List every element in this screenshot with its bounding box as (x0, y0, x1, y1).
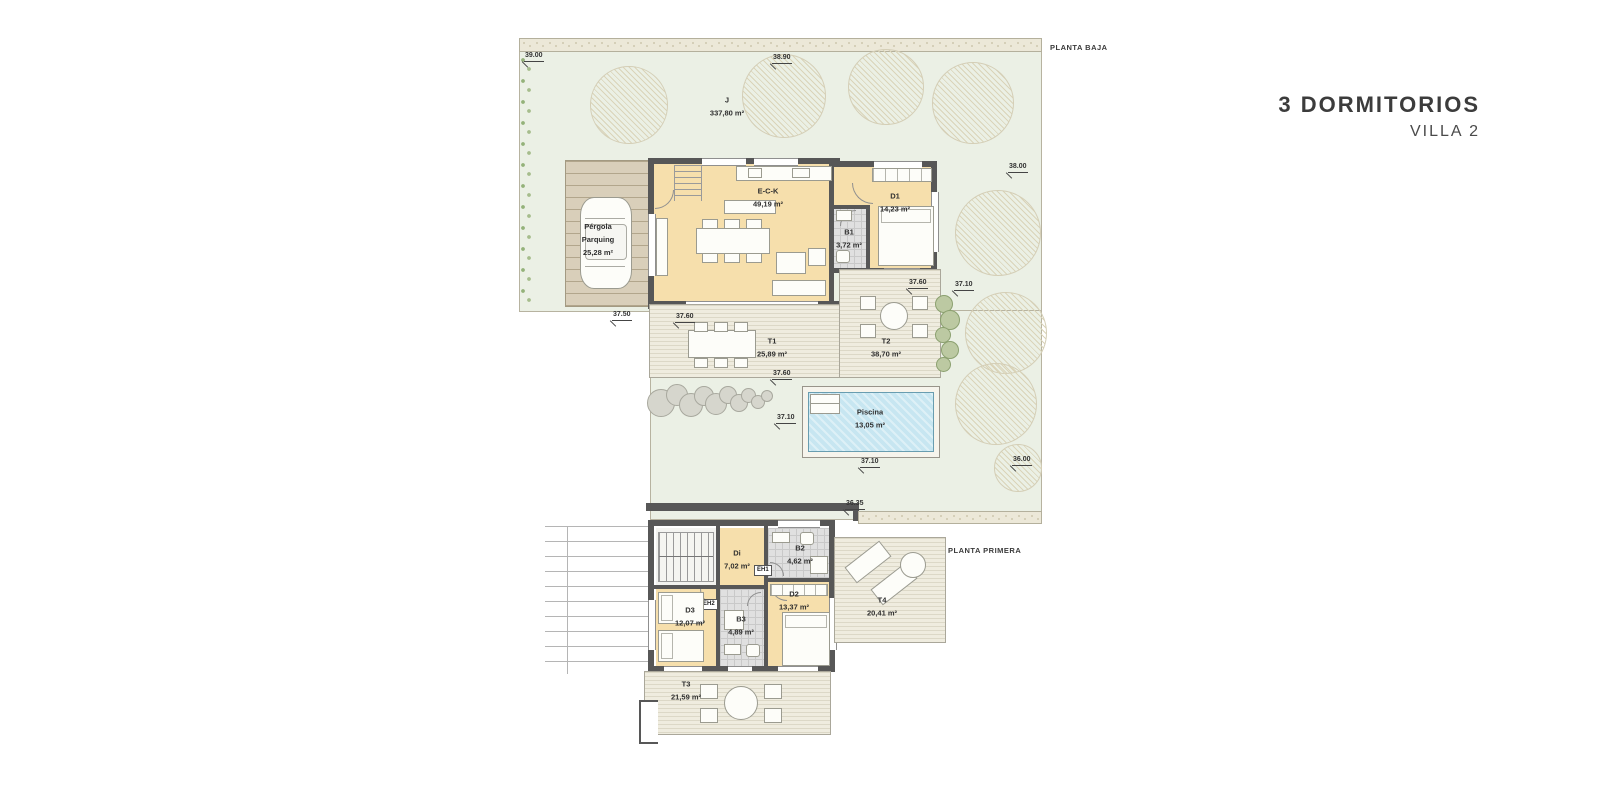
chair (734, 358, 748, 368)
room-label-di: Di 7,02 m² (724, 547, 750, 573)
chair (764, 684, 782, 699)
shrub (761, 390, 773, 402)
wall (764, 582, 768, 672)
page-subtitle: VILLA 2 (1278, 123, 1480, 141)
pool-steps (810, 403, 840, 414)
pergola-slats (545, 526, 650, 674)
chair (700, 708, 718, 723)
dimension: 38.90 (772, 54, 792, 64)
outdoor-table (900, 552, 926, 578)
window (702, 158, 746, 166)
sink (836, 210, 852, 221)
armchair (808, 248, 826, 266)
toilet (836, 250, 850, 263)
chair (746, 253, 762, 263)
dimension: 37.60 (675, 313, 695, 323)
chair (714, 358, 728, 368)
tree-icon (932, 62, 1014, 144)
pillow (785, 615, 827, 628)
tv-bench (656, 218, 668, 276)
coffee-table (776, 252, 806, 274)
window (778, 520, 820, 528)
room-label-pool: Piscina 13,05 m² (855, 406, 885, 432)
dimension: 37.10 (776, 414, 796, 424)
floor-label-planta-baja: PLANTA BAJA (1050, 43, 1108, 52)
sink (724, 644, 741, 655)
chair (694, 322, 708, 332)
planter (936, 357, 951, 372)
dimension: 37.60 (772, 370, 792, 380)
outdoor-table (724, 686, 758, 720)
room-label-t1: T1 25,89 m² (757, 335, 787, 361)
bed (658, 630, 704, 662)
chair (912, 324, 928, 338)
wall (833, 205, 870, 209)
tree-icon (955, 363, 1037, 445)
car-windshield (585, 218, 625, 219)
room-label-pergola: Pérgola Parquing 25,28 m² (582, 221, 615, 259)
chair (764, 708, 782, 723)
dimension: 37.10 (954, 281, 974, 291)
car-rear-window (585, 266, 625, 267)
room-label-eck: E-C-K 49,19 m² (753, 185, 783, 211)
pillow (661, 595, 673, 621)
wall (716, 526, 720, 585)
window (648, 600, 656, 650)
window (648, 214, 656, 276)
chair (694, 358, 708, 368)
wall (866, 205, 870, 268)
closet-eh1: EH1 (754, 565, 772, 576)
dimension: 37.50 (612, 311, 632, 321)
tree-icon (848, 49, 924, 125)
stairs-rail (659, 556, 713, 557)
boundary-hedge-left (519, 56, 536, 302)
wardrobe (872, 168, 932, 182)
tree-icon (955, 190, 1041, 276)
room-label-d2: D2 13,37 m² (779, 588, 809, 614)
terrace-step (639, 700, 658, 744)
dimension: 36.35 (845, 500, 865, 510)
room-label-garden: J 337,80 m² (710, 94, 744, 120)
stairs (674, 165, 702, 201)
title-block: 3 DORMITORIOS VILLA 2 (1278, 92, 1480, 141)
room-label-d1: D1 14,23 m² (880, 190, 910, 216)
room-label-b2: B2 4,62 m² (787, 542, 813, 568)
chair (860, 296, 876, 310)
pillow (661, 633, 673, 659)
floor-label-planta-primera: PLANTA PRIMERA (948, 546, 1021, 555)
tree-icon (994, 444, 1042, 492)
pergola-beam (567, 526, 568, 674)
floor-plan-canvas: 3 DORMITORIOS VILLA 2 J 337,80 m² PLANTA… (0, 0, 1600, 800)
room-label-t2: T2 38,70 m² (871, 335, 901, 361)
toilet (746, 644, 760, 657)
chair (702, 219, 718, 229)
dimension: 36.00 (1012, 456, 1032, 466)
stairs (658, 532, 714, 582)
room-label-t3: T3 21,59 m² (671, 678, 701, 704)
boundary-stone-bottom (858, 511, 1042, 524)
wall (764, 578, 835, 582)
room-label-d3: D3 12,07 m² (675, 604, 705, 630)
bed (782, 612, 830, 666)
chair (714, 322, 728, 332)
sofa (772, 280, 826, 296)
boundary-wall-bottom (646, 503, 858, 511)
dimension: 38.00 (1008, 163, 1028, 173)
window (754, 158, 798, 166)
dining-table (696, 228, 770, 254)
room-label-b3: B3 4,89 m² (728, 613, 754, 639)
chair (724, 253, 740, 263)
outdoor-dining-table (688, 330, 756, 358)
chair (912, 296, 928, 310)
chair (746, 219, 762, 229)
room-label-t4: T4 20,41 m² (867, 594, 897, 620)
chair (724, 219, 740, 229)
chair (700, 684, 718, 699)
room-label-b1: B1 3,72 m² (836, 226, 862, 252)
outdoor-table (880, 302, 908, 330)
chair (702, 253, 718, 263)
tree-icon (742, 54, 826, 138)
boundary-stone-top (519, 38, 1042, 52)
dimension: 37.60 (908, 279, 928, 289)
page-title: 3 DORMITORIOS (1278, 92, 1480, 118)
kitchen-hob (792, 168, 810, 178)
dimension: 37.10 (860, 458, 880, 468)
tree-icon (965, 292, 1047, 374)
tree-icon (590, 66, 668, 144)
kitchen-sink (748, 168, 762, 178)
chair (734, 322, 748, 332)
dimension: 39.00 (524, 52, 544, 62)
